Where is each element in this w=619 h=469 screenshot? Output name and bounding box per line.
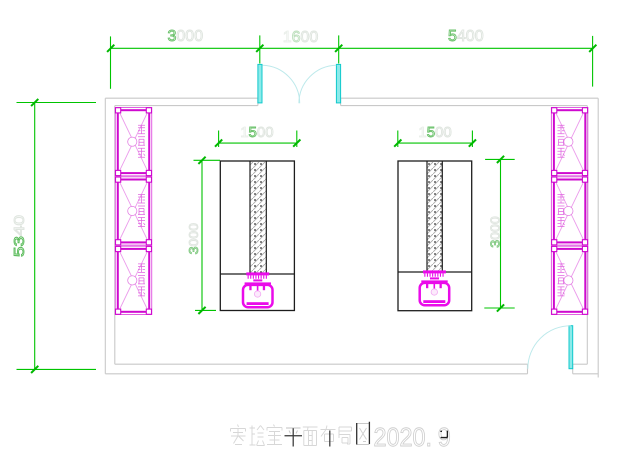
svg-text:3000: 3000 bbox=[167, 28, 203, 45]
svg-text:3000: 3000 bbox=[488, 216, 502, 247]
svg-text:1500: 1500 bbox=[240, 124, 273, 141]
svg-text:1600: 1600 bbox=[283, 29, 319, 46]
svg-text:1500: 1500 bbox=[418, 124, 451, 141]
svg-text:5400: 5400 bbox=[448, 28, 484, 45]
svg-text:2020.: 2020. bbox=[374, 424, 433, 452]
svg-text:3000: 3000 bbox=[187, 223, 201, 254]
svg-text:5340: 5340 bbox=[11, 215, 28, 257]
